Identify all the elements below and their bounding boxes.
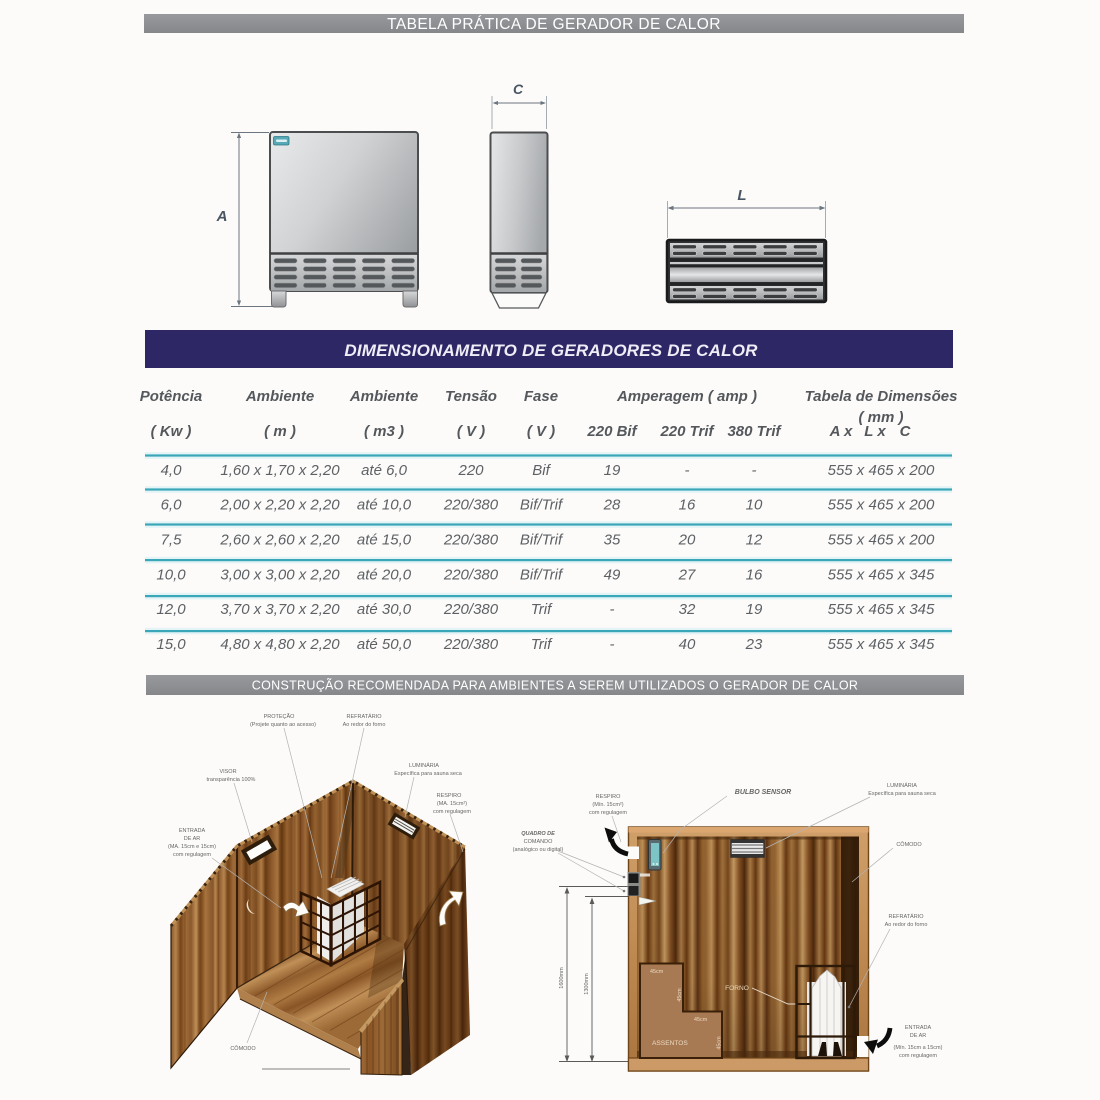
svg-text:DE AR: DE AR: [184, 836, 201, 842]
svg-text:Tensão: Tensão: [445, 388, 497, 405]
svg-text:1300mm: 1300mm: [584, 973, 590, 995]
svg-text:-: -: [752, 462, 757, 479]
svg-text:Bif/Trif: Bif/Trif: [520, 567, 564, 584]
svg-text:LUMINÁRIA: LUMINÁRIA: [409, 762, 439, 769]
svg-text:Ambiente: Ambiente: [245, 388, 314, 405]
svg-text:até 15,0: até 15,0: [357, 532, 412, 549]
svg-text:23: 23: [745, 636, 763, 653]
svg-text:10: 10: [746, 497, 763, 514]
svg-text:VISOR: VISOR: [219, 769, 236, 775]
svg-text:PROTEÇÃO: PROTEÇÃO: [264, 713, 296, 720]
svg-text:1600mm: 1600mm: [559, 967, 565, 989]
svg-text:(analógico ou digital): (analógico ou digital): [513, 847, 564, 853]
svg-text:RESPIRO: RESPIRO: [596, 794, 621, 800]
svg-text:45cm: 45cm: [717, 1036, 723, 1050]
svg-text:Bif/Trif: Bif/Trif: [520, 532, 564, 549]
svg-text:6,0: 6,0: [161, 497, 183, 514]
svg-text:(MA. 15cm²): (MA. 15cm²): [437, 801, 467, 807]
svg-text:RESPIRO: RESPIRO: [437, 793, 462, 799]
svg-text:até 50,0: até 50,0: [357, 636, 412, 653]
svg-text:40: 40: [679, 636, 696, 653]
svg-text:(Mín. 15cm a 15cm): (Mín. 15cm a 15cm): [894, 1045, 943, 1051]
svg-text:L: L: [737, 187, 746, 204]
svg-text:TABELA PRÁTICA DE GERADOR DE C: TABELA PRÁTICA DE GERADOR DE CALOR: [387, 16, 721, 33]
svg-text:27: 27: [678, 567, 696, 584]
svg-text:Fase: Fase: [524, 388, 558, 405]
svg-text:12: 12: [746, 532, 763, 549]
svg-text:DE AR: DE AR: [910, 1033, 927, 1039]
svg-text:Específica para sauna seca: Específica para sauna seca: [394, 771, 463, 777]
svg-text:4,80 x 4,80 x 2,20: 4,80 x 4,80 x 2,20: [220, 636, 340, 653]
svg-text:QUADRO DE: QUADRO DE: [521, 831, 555, 837]
svg-text:2,60 x 2,60 x 2,20: 2,60 x 2,60 x 2,20: [219, 532, 340, 549]
svg-text:1,60 x 1,70 x 2,20: 1,60 x 1,70 x 2,20: [220, 462, 340, 479]
svg-text:3,00 x 3,00 x 2,20: 3,00 x 3,00 x 2,20: [220, 567, 340, 584]
svg-text:CONSTRUÇÃO RECOMENDADA PARA AM: CONSTRUÇÃO RECOMENDADA PARA AMBIENTES A …: [252, 679, 858, 693]
svg-text:32: 32: [679, 601, 696, 618]
svg-text:555 x 465 x 200: 555 x 465 x 200: [828, 462, 935, 479]
svg-text:220/380: 220/380: [443, 567, 499, 584]
svg-text:220: 220: [457, 462, 484, 479]
svg-text:Bif/Trif: Bif/Trif: [520, 497, 564, 514]
svg-text:45cm: 45cm: [677, 988, 683, 1002]
svg-text:( m ): ( m ): [264, 423, 296, 440]
svg-text:220/380: 220/380: [443, 532, 499, 549]
svg-text:A x: A x: [829, 423, 853, 440]
svg-text:FORNO: FORNO: [725, 985, 749, 992]
svg-text:com regulagem: com regulagem: [589, 810, 627, 816]
svg-text:LUMINÁRIA: LUMINÁRIA: [887, 782, 917, 789]
svg-text:COMANDO: COMANDO: [524, 839, 553, 845]
svg-text:BULBO SENSOR: BULBO SENSOR: [735, 789, 791, 796]
svg-text:380 Trif: 380 Trif: [727, 423, 782, 440]
svg-text:(Projete quanto ao acesso): (Projete quanto ao acesso): [250, 722, 316, 728]
svg-text:19: 19: [746, 601, 763, 618]
svg-text:4,0: 4,0: [161, 462, 183, 479]
svg-text:Bif: Bif: [532, 462, 551, 479]
svg-text:19: 19: [604, 462, 621, 479]
svg-text:(Mín. 15cm²): (Mín. 15cm²): [592, 802, 623, 808]
svg-text:Ambiente: Ambiente: [349, 388, 418, 405]
svg-text:20: 20: [678, 532, 696, 549]
svg-text:( V ): ( V ): [527, 423, 555, 440]
svg-text:2,00 x 2,20 x 2,20: 2,00 x 2,20 x 2,20: [219, 497, 340, 514]
svg-text:45cm: 45cm: [650, 969, 664, 975]
svg-text:220 Bif: 220 Bif: [586, 423, 638, 440]
svg-text:Específica para sauna seca: Específica para sauna seca: [868, 791, 937, 797]
svg-text:-: -: [610, 636, 615, 653]
svg-text:49: 49: [604, 567, 621, 584]
svg-text:CÔMODO: CÔMODO: [896, 841, 922, 848]
svg-text:220 Trif: 220 Trif: [659, 423, 715, 440]
svg-text:ENTRADA: ENTRADA: [179, 828, 206, 834]
svg-text:-: -: [610, 601, 615, 618]
svg-text:45cm: 45cm: [694, 1017, 708, 1023]
svg-text:com regulagem: com regulagem: [433, 809, 471, 815]
svg-text:555 x 465 x 345: 555 x 465 x 345: [828, 567, 935, 584]
svg-text:até 10,0: até 10,0: [357, 497, 412, 514]
svg-text:(MA. 15cm e 15cm): (MA. 15cm e 15cm): [168, 844, 216, 850]
svg-text:555 x 465 x 345: 555 x 465 x 345: [828, 601, 935, 618]
svg-text:28: 28: [603, 497, 621, 514]
svg-text:220/380: 220/380: [443, 497, 499, 514]
svg-text:Potência: Potência: [140, 388, 203, 405]
svg-text:Amperagem ( amp ): Amperagem ( amp ): [616, 388, 757, 405]
svg-text:C: C: [513, 81, 524, 97]
svg-text:( Kw ): ( Kw ): [151, 423, 192, 440]
svg-text:16: 16: [746, 567, 763, 584]
svg-text:ASSENTOS: ASSENTOS: [652, 1040, 688, 1047]
svg-text:com regulagem: com regulagem: [173, 852, 211, 858]
svg-text:220/380: 220/380: [443, 636, 499, 653]
svg-text:Trif: Trif: [531, 636, 553, 653]
svg-text:Tabela de Dimensões: Tabela de Dimensões: [805, 388, 958, 405]
svg-text:REFRATÁRIO: REFRATÁRIO: [346, 713, 382, 720]
svg-text:( V ): ( V ): [457, 423, 485, 440]
svg-text:Trif: Trif: [531, 601, 553, 618]
svg-text:7,5: 7,5: [161, 532, 183, 549]
svg-text:até 30,0: até 30,0: [357, 601, 412, 618]
svg-text:220/380: 220/380: [443, 601, 499, 618]
svg-text:até 20,0: até 20,0: [357, 567, 412, 584]
svg-text:555 x 465 x 200: 555 x 465 x 200: [828, 497, 935, 514]
svg-text:10,0: 10,0: [156, 567, 186, 584]
svg-text:12,0: 12,0: [156, 601, 186, 618]
svg-text:-: -: [685, 462, 690, 479]
svg-text:Ao redor do forno: Ao redor do forno: [343, 722, 386, 728]
svg-text:15,0: 15,0: [156, 636, 186, 653]
svg-text:CÔMODO: CÔMODO: [230, 1045, 256, 1052]
svg-text:transparência 100%: transparência 100%: [207, 777, 256, 783]
svg-text:REFRATÁRIO: REFRATÁRIO: [888, 913, 924, 920]
svg-text:35: 35: [604, 532, 621, 549]
svg-text:555 x 465 x 200: 555 x 465 x 200: [828, 532, 935, 549]
svg-text:DIMENSIONAMENTO DE GERADORES D: DIMENSIONAMENTO DE GERADORES DE CALOR: [344, 341, 758, 360]
svg-text:até 6,0: até 6,0: [361, 462, 408, 479]
svg-text:C: C: [900, 423, 912, 440]
svg-text:555 x 465 x 345: 555 x 465 x 345: [828, 636, 935, 653]
svg-text:L x: L x: [864, 423, 886, 440]
svg-text:( m3 ): ( m3 ): [364, 423, 404, 440]
svg-text:A: A: [216, 208, 228, 225]
svg-text:16: 16: [679, 497, 696, 514]
svg-text:3,70 x 3,70 x 2,20: 3,70 x 3,70 x 2,20: [220, 601, 340, 618]
svg-text:Ao redor do forno: Ao redor do forno: [885, 922, 928, 928]
svg-text:ENTRADA: ENTRADA: [905, 1025, 932, 1031]
svg-text:com regulagem: com regulagem: [899, 1053, 937, 1059]
